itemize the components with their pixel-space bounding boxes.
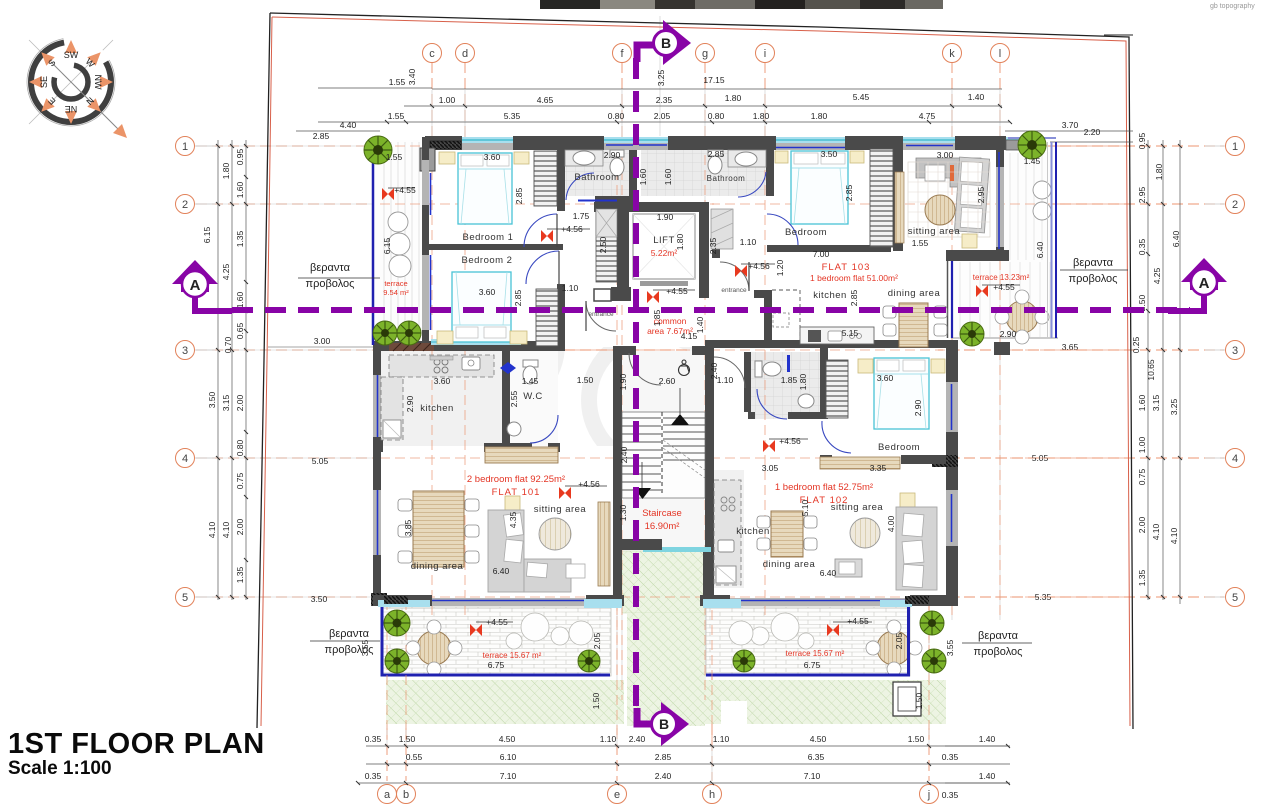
svg-text:Bedroom 2: Bedroom 2 bbox=[462, 255, 513, 266]
svg-text:g: g bbox=[702, 48, 708, 60]
svg-text:1.90: 1.90 bbox=[657, 212, 674, 222]
svg-text:4: 4 bbox=[182, 453, 188, 465]
svg-text:5: 5 bbox=[182, 592, 188, 604]
svg-text:d: d bbox=[462, 48, 468, 60]
svg-text:4.25: 4.25 bbox=[1152, 267, 1162, 284]
svg-text:1.10: 1.10 bbox=[562, 283, 579, 293]
svg-text:+4.55: +4.55 bbox=[847, 616, 869, 626]
svg-text:προβολος: προβολος bbox=[1069, 273, 1118, 285]
svg-text:1 bedroom flat 51.00m²: 1 bedroom flat 51.00m² bbox=[810, 273, 898, 283]
svg-text:0.35: 0.35 bbox=[942, 790, 959, 800]
svg-text:10.65: 10.65 bbox=[1146, 359, 1156, 381]
svg-text:3.60: 3.60 bbox=[484, 152, 501, 162]
svg-text:1.40: 1.40 bbox=[979, 771, 996, 781]
svg-text:NW: NW bbox=[93, 75, 103, 90]
svg-text:2.90: 2.90 bbox=[1000, 329, 1017, 339]
svg-text:1.55: 1.55 bbox=[386, 152, 403, 162]
svg-text:0.35: 0.35 bbox=[365, 734, 382, 744]
svg-text:1.45: 1.45 bbox=[522, 376, 539, 386]
svg-text:kitchen: kitchen bbox=[420, 403, 454, 414]
svg-text:2.50: 2.50 bbox=[598, 236, 608, 253]
svg-text:h: h bbox=[709, 789, 715, 801]
svg-text:5.10: 5.10 bbox=[800, 499, 810, 516]
svg-text:3.25: 3.25 bbox=[656, 69, 666, 86]
svg-text:5.45: 5.45 bbox=[853, 92, 870, 102]
svg-text:2.05: 2.05 bbox=[654, 111, 671, 121]
svg-text:FLAT 103: FLAT 103 bbox=[822, 262, 871, 273]
svg-text:1.10: 1.10 bbox=[713, 734, 730, 744]
svg-text:e: e bbox=[614, 789, 620, 801]
svg-text:Bedroom: Bedroom bbox=[878, 442, 920, 453]
svg-text:4.75: 4.75 bbox=[919, 111, 936, 121]
svg-text:βεραντα: βεραντα bbox=[310, 262, 351, 274]
svg-text:Bedroom 1: Bedroom 1 bbox=[463, 232, 514, 243]
svg-text:4.10: 4.10 bbox=[1169, 527, 1179, 544]
svg-text:1.40: 1.40 bbox=[695, 316, 705, 333]
svg-text:W.C: W.C bbox=[523, 391, 542, 402]
svg-text:c: c bbox=[429, 48, 435, 60]
svg-text:0.75: 0.75 bbox=[1137, 468, 1147, 485]
svg-text:1.00: 1.00 bbox=[439, 95, 456, 105]
svg-text:SE: SE bbox=[39, 76, 49, 88]
svg-text:5.15: 5.15 bbox=[842, 328, 859, 338]
svg-text:terrace: terrace bbox=[384, 279, 407, 288]
svg-text:0.80: 0.80 bbox=[608, 111, 625, 121]
svg-text:προβολος: προβολος bbox=[325, 644, 374, 656]
svg-text:3.60: 3.60 bbox=[479, 287, 496, 297]
svg-text:Bedroom: Bedroom bbox=[785, 227, 827, 238]
svg-text:2.85: 2.85 bbox=[655, 752, 672, 762]
svg-text:kitchen: kitchen bbox=[736, 526, 770, 537]
svg-text:+4.55: +4.55 bbox=[394, 185, 416, 195]
svg-text:dining area: dining area bbox=[888, 288, 941, 299]
svg-text:5.22m²: 5.22m² bbox=[651, 248, 678, 258]
svg-text:3.50: 3.50 bbox=[821, 149, 838, 159]
svg-text:προβολος: προβολος bbox=[306, 278, 355, 290]
svg-text:Bathroom: Bathroom bbox=[574, 172, 619, 183]
svg-text:7.10: 7.10 bbox=[804, 771, 821, 781]
svg-text:3.15: 3.15 bbox=[1151, 394, 1161, 411]
svg-text:sitting area: sitting area bbox=[908, 226, 961, 237]
svg-text:Bathroom: Bathroom bbox=[707, 174, 746, 183]
svg-text:2.85: 2.85 bbox=[514, 187, 524, 204]
svg-text:0.65: 0.65 bbox=[235, 322, 245, 339]
svg-text:2.85: 2.85 bbox=[844, 184, 854, 201]
svg-text:0.35: 0.35 bbox=[365, 771, 382, 781]
svg-text:1.50: 1.50 bbox=[399, 734, 416, 744]
svg-text:1.35: 1.35 bbox=[235, 230, 245, 247]
svg-text:LIFT: LIFT bbox=[653, 235, 675, 246]
svg-text:1.50: 1.50 bbox=[914, 692, 924, 709]
svg-text:k: k bbox=[949, 48, 955, 60]
svg-text:3: 3 bbox=[1232, 345, 1238, 357]
svg-text:1.80: 1.80 bbox=[798, 373, 808, 390]
svg-text:3.70: 3.70 bbox=[1062, 120, 1079, 130]
svg-text:j: j bbox=[927, 789, 930, 801]
svg-text:sitting area: sitting area bbox=[534, 504, 587, 515]
svg-text:terrace 15.67 m²: terrace 15.67 m² bbox=[483, 651, 542, 660]
svg-text:4.10: 4.10 bbox=[207, 521, 217, 538]
svg-text:B: B bbox=[659, 716, 669, 732]
svg-text:3.40: 3.40 bbox=[407, 68, 417, 85]
svg-text:9.54 m²: 9.54 m² bbox=[383, 288, 409, 297]
svg-text:2.40: 2.40 bbox=[629, 734, 646, 744]
svg-text:entrance: entrance bbox=[721, 287, 747, 294]
svg-text:1ST FLOOR PLAN: 1ST FLOOR PLAN bbox=[8, 728, 265, 760]
svg-text:1.60: 1.60 bbox=[1137, 394, 1147, 411]
svg-text:gb topography: gb topography bbox=[1210, 3, 1255, 10]
svg-text:0.80: 0.80 bbox=[235, 439, 245, 456]
svg-text:1.55: 1.55 bbox=[388, 111, 405, 121]
svg-text:2.85: 2.85 bbox=[513, 289, 523, 306]
svg-text:0.95: 0.95 bbox=[1137, 132, 1147, 149]
svg-text:i: i bbox=[764, 48, 766, 60]
svg-text:b: b bbox=[403, 789, 409, 801]
svg-text:entrance: entrance bbox=[588, 311, 614, 318]
svg-text:1.80: 1.80 bbox=[675, 233, 685, 250]
svg-text:1.60: 1.60 bbox=[235, 181, 245, 198]
svg-text:1.35: 1.35 bbox=[235, 566, 245, 583]
svg-text:1.85: 1.85 bbox=[781, 375, 798, 385]
svg-text:2.95: 2.95 bbox=[976, 186, 986, 203]
svg-text:3.50: 3.50 bbox=[207, 391, 217, 408]
svg-text:3.65: 3.65 bbox=[1062, 342, 1079, 352]
svg-text:16.90m²: 16.90m² bbox=[645, 521, 680, 532]
svg-text:6.10: 6.10 bbox=[500, 752, 517, 762]
svg-text:Scale 1:100: Scale 1:100 bbox=[8, 758, 112, 779]
svg-text:2.90: 2.90 bbox=[604, 150, 621, 160]
svg-text:0.95: 0.95 bbox=[235, 148, 245, 165]
svg-text:2.85: 2.85 bbox=[849, 289, 859, 306]
svg-text:1.50: 1.50 bbox=[908, 734, 925, 744]
svg-text:1.10: 1.10 bbox=[717, 375, 734, 385]
svg-text:0.55: 0.55 bbox=[406, 752, 423, 762]
svg-text:+4.55: +4.55 bbox=[666, 286, 688, 296]
svg-text:2.40: 2.40 bbox=[655, 771, 672, 781]
svg-text:4.10: 4.10 bbox=[221, 521, 231, 538]
svg-text:2.35: 2.35 bbox=[708, 237, 718, 254]
svg-text:1.80: 1.80 bbox=[753, 111, 770, 121]
svg-text:2.85: 2.85 bbox=[313, 131, 330, 141]
svg-text:3.15: 3.15 bbox=[221, 394, 231, 411]
svg-text:2.05: 2.05 bbox=[592, 632, 602, 649]
svg-text:1.80: 1.80 bbox=[811, 111, 828, 121]
svg-text:προβολος: προβολος bbox=[974, 646, 1023, 658]
svg-text:+4.55: +4.55 bbox=[993, 282, 1015, 292]
svg-text:l: l bbox=[999, 48, 1001, 60]
svg-text:2: 2 bbox=[182, 199, 188, 211]
svg-text:5.05: 5.05 bbox=[312, 456, 329, 466]
svg-text:3.60: 3.60 bbox=[434, 376, 451, 386]
svg-text:17.15: 17.15 bbox=[703, 75, 725, 85]
svg-text:kitchen: kitchen bbox=[813, 290, 847, 301]
svg-text:+4.56: +4.56 bbox=[779, 436, 801, 446]
svg-text:1.55: 1.55 bbox=[389, 77, 406, 87]
svg-text:2.60: 2.60 bbox=[659, 376, 676, 386]
svg-text:7.10: 7.10 bbox=[500, 771, 517, 781]
svg-text:dining area: dining area bbox=[411, 561, 464, 572]
svg-text:6.15: 6.15 bbox=[382, 237, 392, 254]
svg-text:SW: SW bbox=[64, 50, 79, 60]
svg-text:1.35: 1.35 bbox=[1137, 569, 1147, 586]
svg-text:0.25: 0.25 bbox=[1131, 336, 1141, 353]
svg-text:6.15: 6.15 bbox=[202, 226, 212, 243]
svg-text:1.60: 1.60 bbox=[235, 291, 245, 308]
svg-text:1: 1 bbox=[1232, 141, 1238, 153]
svg-text:+4.56: +4.56 bbox=[578, 479, 600, 489]
svg-text:βεραντα: βεραντα bbox=[329, 628, 370, 640]
svg-text:2.00: 2.00 bbox=[235, 394, 245, 411]
svg-text:2: 2 bbox=[1232, 199, 1238, 211]
svg-text:3.60: 3.60 bbox=[877, 373, 894, 383]
svg-text:4: 4 bbox=[1232, 453, 1238, 465]
svg-text:0.70: 0.70 bbox=[223, 336, 233, 353]
svg-text:5.35: 5.35 bbox=[504, 111, 521, 121]
svg-text:3: 3 bbox=[182, 345, 188, 357]
svg-text:1.20: 1.20 bbox=[775, 259, 785, 276]
svg-text:6.35: 6.35 bbox=[808, 752, 825, 762]
svg-text:1.60: 1.60 bbox=[638, 168, 648, 185]
svg-text:2.00: 2.00 bbox=[1137, 516, 1147, 533]
svg-text:0.35: 0.35 bbox=[942, 752, 959, 762]
svg-text:1.90: 1.90 bbox=[618, 373, 628, 390]
svg-text:0.80: 0.80 bbox=[708, 111, 725, 121]
svg-text:6.40: 6.40 bbox=[1035, 241, 1045, 258]
svg-text:3.55: 3.55 bbox=[945, 639, 955, 656]
svg-text:5: 5 bbox=[1232, 592, 1238, 604]
svg-text:2.00: 2.00 bbox=[235, 518, 245, 535]
svg-text:0.75: 0.75 bbox=[235, 472, 245, 489]
svg-text:A: A bbox=[190, 277, 201, 294]
svg-text:1.10: 1.10 bbox=[600, 734, 617, 744]
svg-text:2 bedroom flat 92.25m²: 2 bedroom flat 92.25m² bbox=[467, 474, 565, 485]
svg-text:3.00: 3.00 bbox=[937, 150, 954, 160]
svg-text:βεραντα: βεραντα bbox=[1073, 257, 1114, 269]
svg-text:6.40: 6.40 bbox=[493, 566, 510, 576]
svg-text:3.50: 3.50 bbox=[311, 594, 328, 604]
svg-text:2.55: 2.55 bbox=[509, 390, 519, 407]
svg-text:2.90: 2.90 bbox=[913, 399, 923, 416]
svg-text:1.80: 1.80 bbox=[221, 162, 231, 179]
svg-text:2.40: 2.40 bbox=[709, 362, 719, 379]
svg-text:2.95: 2.95 bbox=[1137, 186, 1147, 203]
svg-text:4.35: 4.35 bbox=[508, 511, 518, 528]
svg-text:B: B bbox=[661, 35, 671, 51]
svg-text:1: 1 bbox=[182, 141, 188, 153]
svg-text:terrace 13.23m²: terrace 13.23m² bbox=[973, 273, 1030, 282]
svg-text:+4.56: +4.56 bbox=[748, 261, 770, 271]
svg-text:1.80: 1.80 bbox=[725, 93, 742, 103]
svg-text:4.50: 4.50 bbox=[499, 734, 516, 744]
svg-text:1.75: 1.75 bbox=[573, 211, 590, 221]
svg-text:4.40: 4.40 bbox=[340, 120, 357, 130]
svg-text:0.35: 0.35 bbox=[1137, 238, 1147, 255]
svg-text:6.75: 6.75 bbox=[488, 660, 505, 670]
svg-text:1.00: 1.00 bbox=[1137, 436, 1147, 453]
svg-text:2.05: 2.05 bbox=[894, 632, 904, 649]
svg-text:Staircase: Staircase bbox=[642, 508, 682, 519]
svg-text:7.00: 7.00 bbox=[813, 249, 830, 259]
svg-text:2.35: 2.35 bbox=[656, 95, 673, 105]
svg-text:6.40: 6.40 bbox=[820, 568, 837, 578]
svg-text:1.60: 1.60 bbox=[663, 168, 673, 185]
svg-text:6.75: 6.75 bbox=[804, 660, 821, 670]
svg-text:4.25: 4.25 bbox=[221, 263, 231, 280]
svg-text:FLAT 101: FLAT 101 bbox=[492, 487, 541, 498]
svg-text:1.40: 1.40 bbox=[979, 734, 996, 744]
svg-text:6.40: 6.40 bbox=[1171, 230, 1181, 247]
svg-text:NE: NE bbox=[65, 104, 78, 114]
svg-text:1.45: 1.45 bbox=[1024, 156, 1041, 166]
svg-text:1.85: 1.85 bbox=[652, 309, 662, 326]
svg-text:4.00: 4.00 bbox=[886, 515, 896, 532]
svg-text:4.10: 4.10 bbox=[1151, 523, 1161, 540]
svg-text:3.35: 3.35 bbox=[870, 463, 887, 473]
svg-text:3.25: 3.25 bbox=[1169, 398, 1179, 415]
svg-text:2.40: 2.40 bbox=[619, 446, 629, 463]
svg-text:1.40: 1.40 bbox=[968, 92, 985, 102]
svg-text:dining area: dining area bbox=[763, 559, 816, 570]
svg-text:3.05: 3.05 bbox=[762, 463, 779, 473]
svg-text:terrace 15.67 m²: terrace 15.67 m² bbox=[786, 649, 845, 658]
svg-text:3.85: 3.85 bbox=[403, 519, 413, 536]
svg-text:1.80: 1.80 bbox=[1154, 163, 1164, 180]
svg-text:1 bedroom flat 52.75m²: 1 bedroom flat 52.75m² bbox=[775, 482, 873, 493]
svg-text:2.20: 2.20 bbox=[1084, 127, 1101, 137]
svg-text:3.00: 3.00 bbox=[314, 336, 331, 346]
svg-text:1.50: 1.50 bbox=[591, 692, 601, 709]
svg-text:4.65: 4.65 bbox=[537, 95, 554, 105]
svg-text:2.85: 2.85 bbox=[708, 149, 725, 159]
svg-text:1.10: 1.10 bbox=[740, 237, 757, 247]
svg-text:1.55: 1.55 bbox=[912, 238, 929, 248]
svg-text:βεραντα: βεραντα bbox=[978, 630, 1019, 642]
svg-text:4.50: 4.50 bbox=[810, 734, 827, 744]
svg-text:A: A bbox=[1199, 275, 1210, 292]
svg-text:1.30: 1.30 bbox=[618, 504, 628, 521]
svg-text:a: a bbox=[384, 789, 391, 801]
svg-text:2.90: 2.90 bbox=[405, 395, 415, 412]
svg-text:1.50: 1.50 bbox=[577, 375, 594, 385]
